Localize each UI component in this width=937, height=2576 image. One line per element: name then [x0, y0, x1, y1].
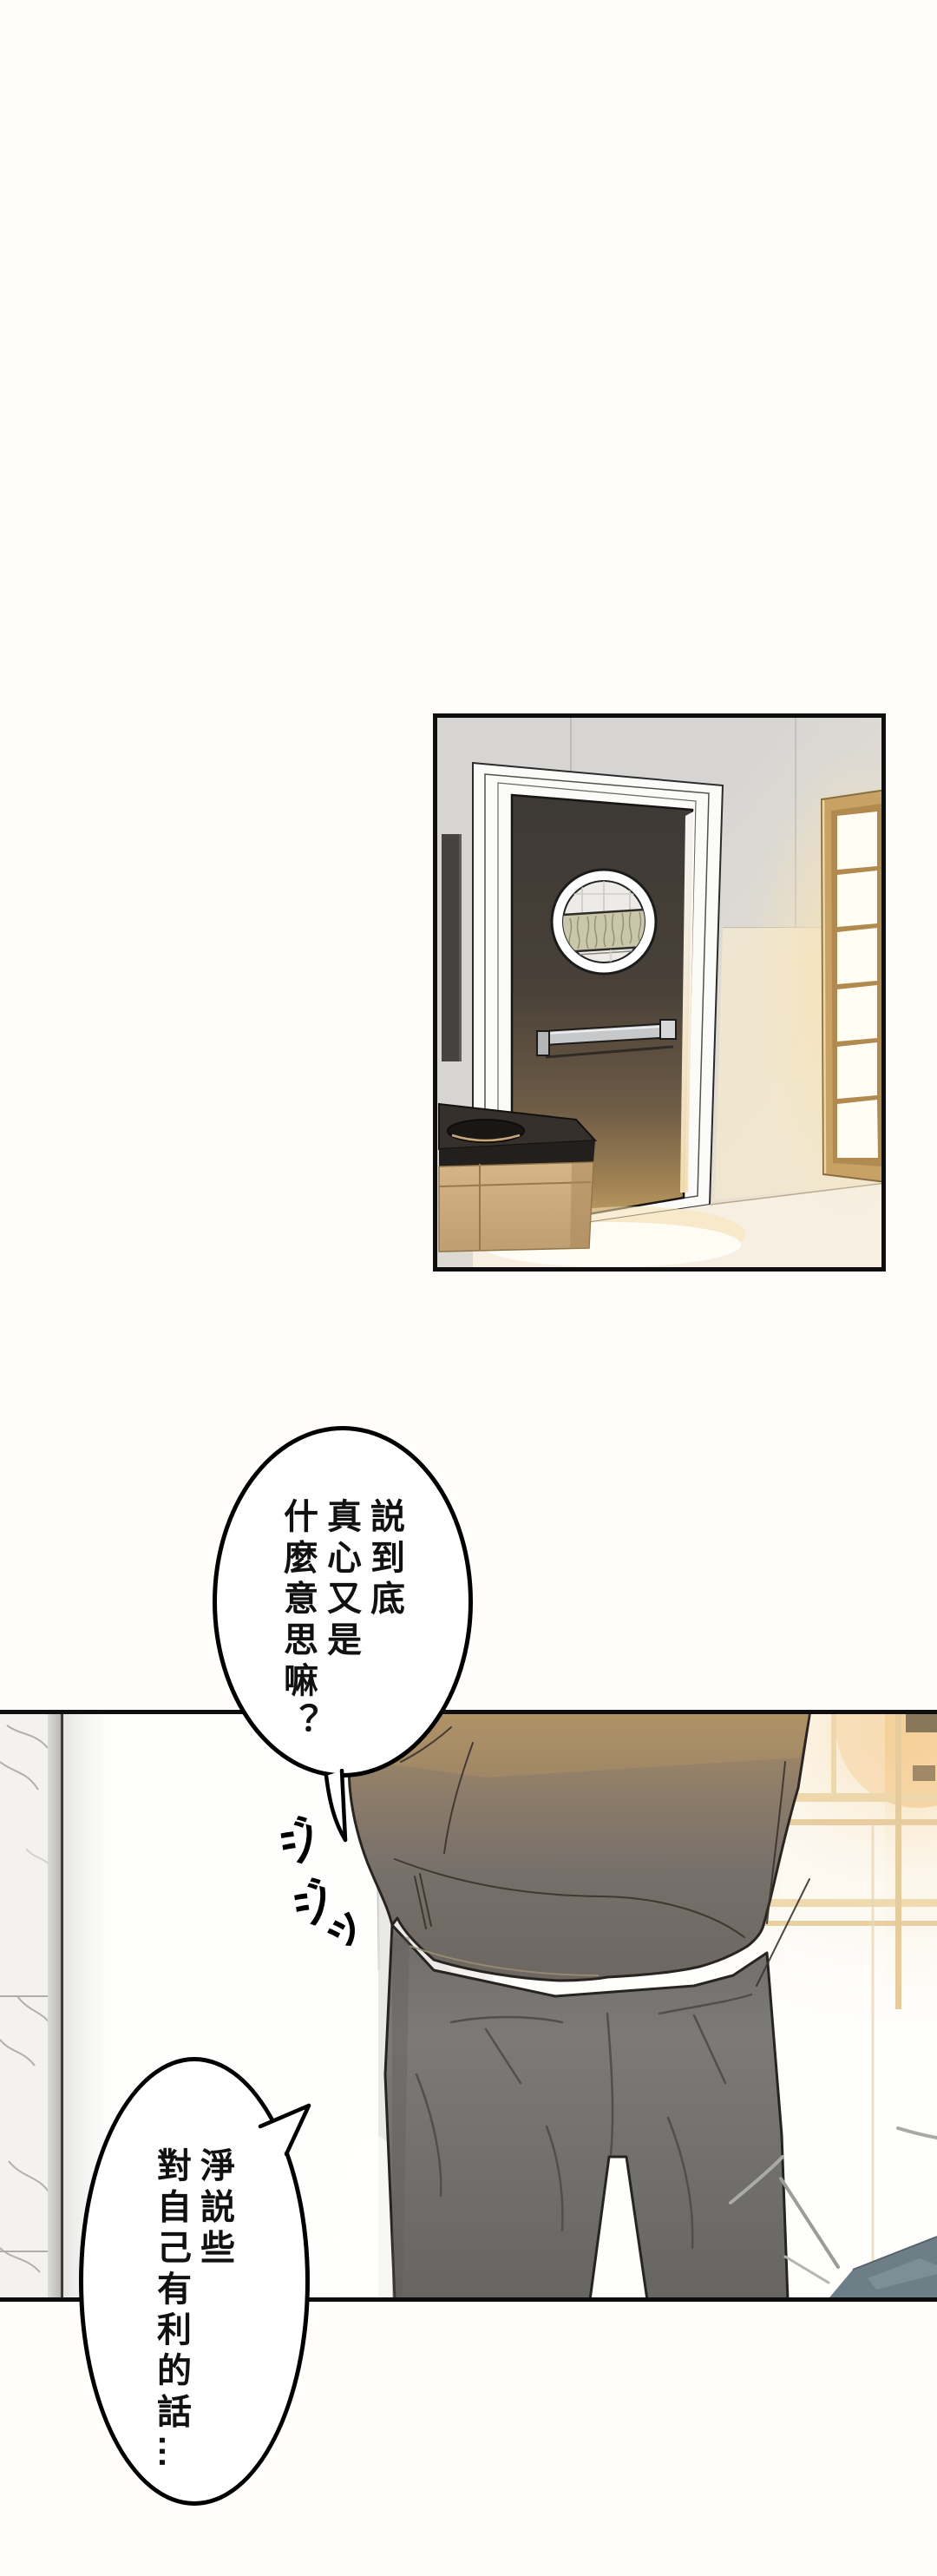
panel-bathroom	[433, 713, 886, 1272]
marble-pillar	[0, 1710, 64, 2302]
wall-mirror-edge	[442, 834, 462, 1061]
sink-basin	[448, 1120, 524, 1142]
speech-bubble-2-tail	[257, 2099, 319, 2161]
figure-jacket	[349, 1710, 810, 1986]
panel-border-top	[0, 1710, 937, 1714]
comic-page: 説到底 真心又是 什麼意思嘛？ 淨説些 對自己有利的話… ジ ジッ	[0, 0, 937, 2576]
speech-bubble-1-text: 説到底 真心又是 什麼意思嘛？	[276, 1498, 406, 1784]
sink-counter	[439, 1104, 595, 1252]
speech-bubble-2-text: 淨説些 對自己有利的話…	[149, 2147, 236, 2503]
